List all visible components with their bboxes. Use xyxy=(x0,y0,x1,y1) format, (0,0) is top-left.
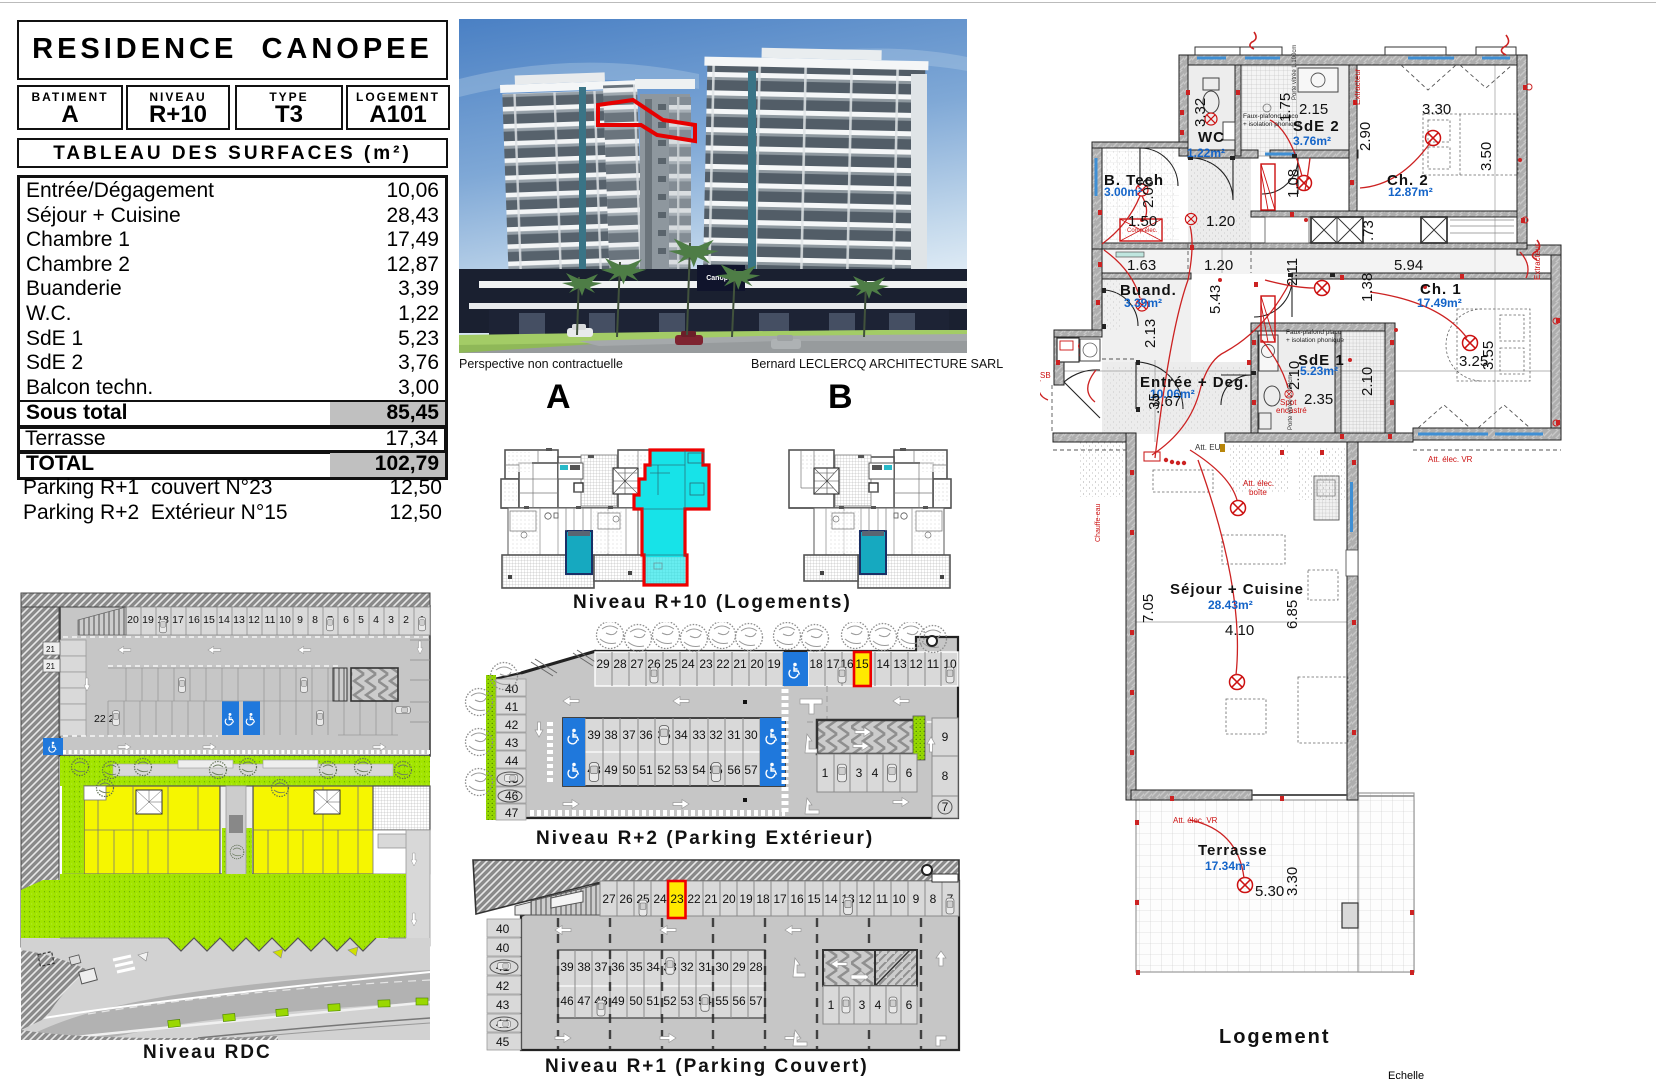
svg-text:27: 27 xyxy=(630,657,644,671)
svg-text:53: 53 xyxy=(680,994,694,1008)
svg-text:12: 12 xyxy=(909,657,923,671)
svg-text:9: 9 xyxy=(942,730,949,744)
svg-text:3: 3 xyxy=(388,614,394,626)
svg-text:28: 28 xyxy=(749,960,763,974)
svg-text:49: 49 xyxy=(604,763,618,777)
svg-text:36: 36 xyxy=(639,728,653,742)
svg-text:39: 39 xyxy=(560,960,574,974)
svg-text:22: 22 xyxy=(687,892,701,906)
svg-text:20: 20 xyxy=(127,614,139,626)
svg-text:29: 29 xyxy=(596,657,610,671)
svg-text:Att. EU: Att. EU xyxy=(1195,443,1221,452)
svg-text:1.63: 1.63 xyxy=(1127,257,1156,274)
svg-text:Extracteur: Extracteur xyxy=(1533,243,1542,280)
svg-text:1.50: 1.50 xyxy=(1128,213,1157,230)
svg-text:27: 27 xyxy=(602,892,616,906)
svg-text:45: 45 xyxy=(496,1035,510,1049)
svg-text:24: 24 xyxy=(653,892,667,906)
svg-text:5: 5 xyxy=(358,614,364,626)
svg-text:51: 51 xyxy=(639,763,653,777)
svg-text:4: 4 xyxy=(872,766,879,780)
svg-text:30: 30 xyxy=(744,728,758,742)
svg-text:26: 26 xyxy=(619,892,633,906)
svg-text:SdE 2: SdE 2 xyxy=(1293,118,1340,135)
svg-text:Séjour + Cuisine: Séjour + Cuisine xyxy=(1170,581,1304,598)
svg-text:40: 40 xyxy=(496,941,510,955)
svg-text:25: 25 xyxy=(664,657,678,671)
svg-text:2.35: 2.35 xyxy=(1304,391,1333,408)
svg-text:2.00: 2.00 xyxy=(1140,179,1157,208)
svg-text:Faux-plafond placo: Faux-plafond placo xyxy=(1286,329,1342,336)
svg-text:52: 52 xyxy=(657,763,671,777)
svg-text:Chauffe-eau: Chauffe-eau xyxy=(1095,503,1102,542)
svg-text:+ isolation phonique: + isolation phonique xyxy=(1286,337,1344,344)
svg-text:57: 57 xyxy=(749,994,763,1008)
svg-text:5.23m²: 5.23m² xyxy=(1300,364,1338,378)
svg-text:16: 16 xyxy=(188,614,200,626)
svg-text:9: 9 xyxy=(913,892,920,906)
svg-text:3.32: 3.32 xyxy=(1192,98,1209,127)
svg-text:34: 34 xyxy=(646,960,660,974)
svg-text:Att. élec. VR: Att. élec. VR xyxy=(1173,816,1218,825)
svg-text:39: 39 xyxy=(587,728,601,742)
svg-text:44: 44 xyxy=(505,754,519,768)
svg-text:3: 3 xyxy=(859,998,866,1012)
svg-text:14: 14 xyxy=(876,657,890,671)
svg-text:5.43: 5.43 xyxy=(1207,285,1224,314)
svg-text:31: 31 xyxy=(698,960,712,974)
svg-text:57: 57 xyxy=(744,763,758,777)
svg-text:3.39m²: 3.39m² xyxy=(1124,296,1162,310)
svg-text:12.87m²: 12.87m² xyxy=(1388,185,1433,199)
svg-text:WC: WC xyxy=(1198,129,1225,146)
svg-text:2.13: 2.13 xyxy=(1142,319,1159,348)
svg-text:9: 9 xyxy=(297,614,303,626)
svg-text:34: 34 xyxy=(674,728,688,742)
svg-text:31: 31 xyxy=(727,728,741,742)
svg-text:42: 42 xyxy=(496,979,510,993)
svg-text:43: 43 xyxy=(505,736,519,750)
svg-text:23: 23 xyxy=(699,657,713,671)
svg-text:18: 18 xyxy=(809,657,823,671)
svg-text:22: 22 xyxy=(716,657,730,671)
svg-text:38: 38 xyxy=(577,960,591,974)
svg-text:4.10: 4.10 xyxy=(1225,622,1254,639)
svg-text:33: 33 xyxy=(692,728,706,742)
svg-text:1.38: 1.38 xyxy=(1359,273,1376,302)
svg-text:7.05: 7.05 xyxy=(1140,594,1157,623)
svg-text:17.49m²: 17.49m² xyxy=(1417,296,1462,310)
svg-text:12: 12 xyxy=(248,614,260,626)
svg-text:35: 35 xyxy=(629,960,643,974)
svg-text:Extracteur: Extracteur xyxy=(1353,68,1362,105)
svg-text:37: 37 xyxy=(622,728,636,742)
svg-text:47: 47 xyxy=(505,806,519,820)
svg-text:4: 4 xyxy=(875,998,882,1012)
svg-text:49: 49 xyxy=(611,994,625,1008)
svg-text:boîte: boîte xyxy=(1249,488,1267,497)
svg-text:51: 51 xyxy=(646,994,660,1008)
svg-text:15: 15 xyxy=(807,892,821,906)
svg-text:32: 32 xyxy=(709,728,723,742)
svg-text:2.15: 2.15 xyxy=(1299,101,1328,118)
svg-text:8: 8 xyxy=(312,614,318,626)
svg-text:20: 20 xyxy=(722,892,736,906)
svg-text:8: 8 xyxy=(942,769,949,783)
svg-text:17: 17 xyxy=(773,892,787,906)
svg-text:54: 54 xyxy=(692,763,706,777)
svg-text:Terrasse: Terrasse xyxy=(1198,842,1267,859)
svg-text:.73: .73 xyxy=(1360,220,1377,241)
svg-text:41: 41 xyxy=(505,700,519,714)
svg-text:6: 6 xyxy=(906,998,913,1012)
svg-text:55: 55 xyxy=(715,994,729,1008)
svg-text:19: 19 xyxy=(767,657,781,671)
svg-text:3.00m²: 3.00m² xyxy=(1104,185,1142,199)
svg-text:2: 2 xyxy=(403,614,409,626)
svg-text:37: 37 xyxy=(594,960,608,974)
svg-text:3.55: 3.55 xyxy=(1480,341,1497,370)
svg-text:14: 14 xyxy=(218,614,230,626)
svg-text:19: 19 xyxy=(142,614,154,626)
svg-text:11: 11 xyxy=(927,657,940,671)
svg-text:36: 36 xyxy=(611,960,625,974)
svg-text:3.30: 3.30 xyxy=(1422,101,1451,118)
svg-text:11: 11 xyxy=(876,892,889,906)
svg-text:1: 1 xyxy=(822,766,829,780)
svg-text:47: 47 xyxy=(577,994,591,1008)
svg-text:11: 11 xyxy=(265,614,276,626)
svg-text:10: 10 xyxy=(279,614,291,626)
svg-text:5.30: 5.30 xyxy=(1255,883,1284,900)
svg-text:SB: SB xyxy=(1040,371,1051,380)
svg-text:21: 21 xyxy=(733,657,747,671)
svg-text:24: 24 xyxy=(681,657,695,671)
svg-text:1.22m²: 1.22m² xyxy=(1187,146,1225,160)
svg-text:2.10: 2.10 xyxy=(1286,361,1303,390)
svg-text:3.50: 3.50 xyxy=(1478,142,1495,171)
svg-text:7: 7 xyxy=(942,800,949,814)
svg-text:50: 50 xyxy=(622,763,636,777)
svg-text:17: 17 xyxy=(172,614,184,626)
svg-text:3.30: 3.30 xyxy=(1284,867,1301,896)
svg-text:13: 13 xyxy=(233,614,245,626)
svg-text:13: 13 xyxy=(893,657,907,671)
svg-text:2.90: 2.90 xyxy=(1357,122,1374,151)
svg-text:14: 14 xyxy=(824,892,838,906)
svg-text:28: 28 xyxy=(613,657,627,671)
svg-text:6: 6 xyxy=(906,766,913,780)
svg-text:20: 20 xyxy=(750,657,764,671)
svg-text:23: 23 xyxy=(670,892,684,906)
svg-text:8: 8 xyxy=(930,892,937,906)
svg-text:52: 52 xyxy=(663,994,677,1008)
svg-text:21: 21 xyxy=(46,662,55,671)
svg-text:42: 42 xyxy=(505,718,519,732)
svg-text:Att. élec.: Att. élec. xyxy=(1243,479,1274,488)
svg-text:40: 40 xyxy=(496,922,510,936)
svg-text:21: 21 xyxy=(704,892,718,906)
svg-text:Att. élec. VR: Att. élec. VR xyxy=(1428,455,1473,464)
svg-text:19: 19 xyxy=(739,892,753,906)
svg-text:6.85: 6.85 xyxy=(1284,600,1301,629)
svg-text:12: 12 xyxy=(858,892,872,906)
svg-text:56: 56 xyxy=(727,763,741,777)
svg-text:2.11: 2.11 xyxy=(1284,258,1301,286)
svg-text:50: 50 xyxy=(629,994,643,1008)
svg-text:56: 56 xyxy=(732,994,746,1008)
svg-text:18: 18 xyxy=(756,892,770,906)
svg-text:5.94: 5.94 xyxy=(1394,257,1423,274)
svg-text:46: 46 xyxy=(560,994,574,1008)
svg-text:15: 15 xyxy=(203,614,215,626)
svg-text:53: 53 xyxy=(674,763,688,777)
svg-text:1.20: 1.20 xyxy=(1206,213,1235,230)
svg-text:16: 16 xyxy=(790,892,804,906)
svg-text:28.43m²: 28.43m² xyxy=(1208,598,1253,612)
svg-text:6: 6 xyxy=(343,614,349,626)
svg-text:38: 38 xyxy=(604,728,618,742)
svg-text:30: 30 xyxy=(715,960,729,974)
svg-text:21: 21 xyxy=(46,645,55,654)
svg-text:1.08: 1.08 xyxy=(1285,169,1302,198)
svg-text:10: 10 xyxy=(892,892,906,906)
svg-text:2.10: 2.10 xyxy=(1359,367,1376,396)
svg-text:1.75: 1.75 xyxy=(1277,93,1294,122)
svg-text:43: 43 xyxy=(496,998,510,1012)
svg-text:17.34m²: 17.34m² xyxy=(1205,859,1250,873)
svg-text:1: 1 xyxy=(828,998,835,1012)
svg-text:4: 4 xyxy=(373,614,379,626)
svg-text:29: 29 xyxy=(732,960,746,974)
svg-text:15: 15 xyxy=(855,657,869,671)
svg-text:Porte vitrée L.100cm: Porte vitrée L.100cm xyxy=(1292,45,1298,100)
svg-text:1.20: 1.20 xyxy=(1204,257,1233,274)
svg-text:3.76m²: 3.76m² xyxy=(1293,134,1331,148)
svg-text:3: 3 xyxy=(856,766,863,780)
svg-text:32: 32 xyxy=(680,960,694,974)
svg-text:.35: .35 xyxy=(1146,393,1163,414)
